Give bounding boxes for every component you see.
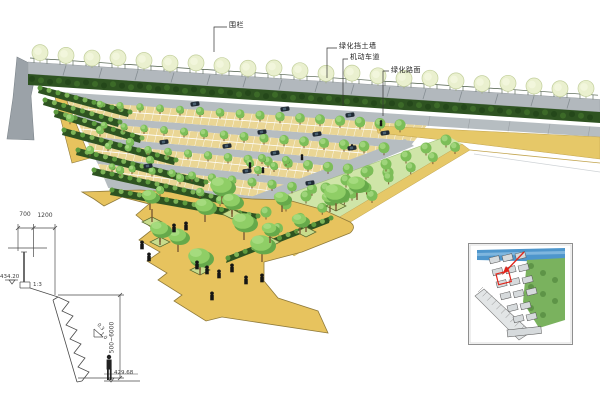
- label-motor-lane: 机动车道: [350, 53, 380, 61]
- section-detail-drawing: [5, 224, 140, 382]
- inset-map-graphic: [469, 244, 572, 344]
- label-green-pavement: 绿化路面: [391, 66, 421, 74]
- location-inset-map: [468, 243, 573, 345]
- elevation-bottom: 429.68: [114, 370, 133, 377]
- dim-1200: 1200: [34, 212, 56, 219]
- dim-height-range: 500~6000: [109, 312, 116, 364]
- label-retaining-wall: 绿化挡土墙: [339, 42, 377, 50]
- dim-700: 700: [15, 211, 35, 218]
- elevation-top: 434.20: [0, 274, 19, 281]
- slope-ratio: 1:3: [33, 282, 42, 289]
- label-fence: 围栏: [229, 21, 244, 29]
- landscape-parking-plan-illustration: 围栏 绿化挡土墙 机动车道 绿化路面 700 1200 434.20 1:3 0…: [0, 0, 600, 401]
